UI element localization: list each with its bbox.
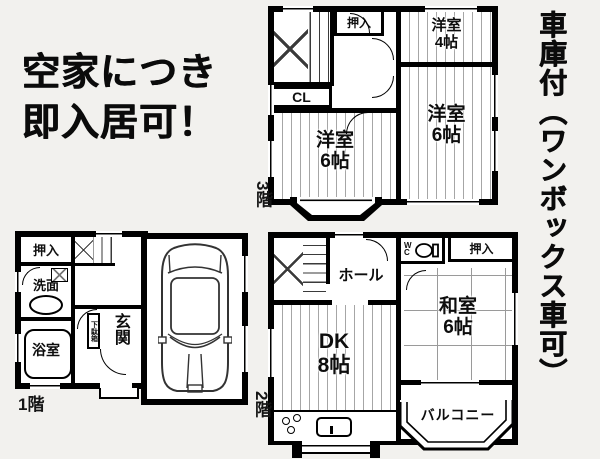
room-dk-label: DK 8帖	[282, 330, 386, 377]
stairs-icon	[274, 12, 330, 86]
wc-room: WC	[401, 238, 445, 264]
wall	[75, 263, 115, 266]
headline-line1: 空家につき	[22, 48, 217, 98]
window	[282, 6, 314, 12]
window	[512, 292, 518, 346]
door-arc	[366, 239, 388, 261]
headline-line2: 即入居可！	[22, 98, 217, 148]
wall	[75, 305, 142, 309]
floor3-label: 3階	[250, 181, 275, 207]
window	[268, 328, 274, 378]
stairs-winder	[274, 238, 303, 300]
floorplan-flyer: { "colors":{"background":"#f2f1ee","wall…	[0, 0, 600, 459]
burner-icon	[282, 417, 290, 425]
window	[29, 383, 61, 389]
door-arc	[372, 38, 394, 60]
window	[15, 271, 21, 293]
wall	[21, 262, 71, 266]
room-western-6-left-label: 洋室 6帖	[274, 130, 396, 173]
room-western-6-right-label: 洋室 6帖	[401, 104, 492, 147]
window	[95, 231, 123, 237]
faucet-icon	[330, 426, 333, 434]
door-arc	[100, 349, 126, 375]
wc-label: WC	[404, 242, 413, 256]
floor3-plan: 押入 洋室 4帖 洋室 6帖 CL 洋室 6帖	[268, 6, 498, 205]
washer-pan-icon	[51, 268, 68, 282]
headline: 空家につき 即入居可！	[22, 48, 217, 148]
window	[492, 130, 498, 172]
shoe-cabinet: 下駄箱	[87, 313, 100, 349]
room-western-4-label: 洋室 4帖	[401, 18, 492, 52]
window	[268, 140, 274, 178]
wall	[21, 317, 71, 321]
window	[334, 232, 364, 238]
hall-label: ホール	[326, 268, 396, 285]
window	[268, 84, 274, 116]
closet-oshiire-1f: 押入	[21, 237, 71, 262]
bathroom-label: 浴室	[24, 343, 68, 359]
toilet-icon	[414, 242, 440, 259]
closet-cl: CL	[274, 86, 332, 108]
window	[15, 333, 21, 363]
stairs-winder	[75, 237, 93, 263]
window	[424, 6, 478, 12]
washbasin-icon	[29, 295, 63, 315]
bay-window-3f	[290, 197, 382, 223]
floor1-label: 1階	[18, 390, 44, 415]
side-note: 車庫付（ワンボックス車可）	[531, 10, 571, 456]
kitchen-counter	[274, 410, 396, 441]
car-icon	[158, 242, 232, 396]
burner-icon	[287, 426, 295, 434]
window	[420, 380, 480, 385]
closet-oshiire-2f: 押入	[448, 238, 512, 262]
sink-icon	[316, 417, 352, 437]
entrance-step	[99, 388, 139, 399]
door-arc	[372, 76, 394, 98]
balcony-label: バルコニー	[410, 408, 506, 424]
floor2-label: 2階	[249, 391, 274, 417]
room-washitsu-label: 和室 6帖	[404, 296, 512, 339]
window	[406, 199, 480, 205]
garage	[141, 233, 248, 405]
burner-icon	[293, 414, 301, 422]
window	[242, 255, 248, 293]
door-arc	[22, 267, 40, 285]
bay-window-2f	[288, 441, 384, 459]
stairs-icon	[274, 238, 326, 300]
window	[242, 325, 248, 373]
floor1-plan: 押入 洗面 浴室 下駄箱 玄関	[15, 231, 148, 389]
stairs-winder	[274, 12, 308, 86]
entrance-label: 玄関	[111, 313, 129, 345]
window	[492, 74, 498, 118]
stairs-icon	[75, 237, 115, 263]
